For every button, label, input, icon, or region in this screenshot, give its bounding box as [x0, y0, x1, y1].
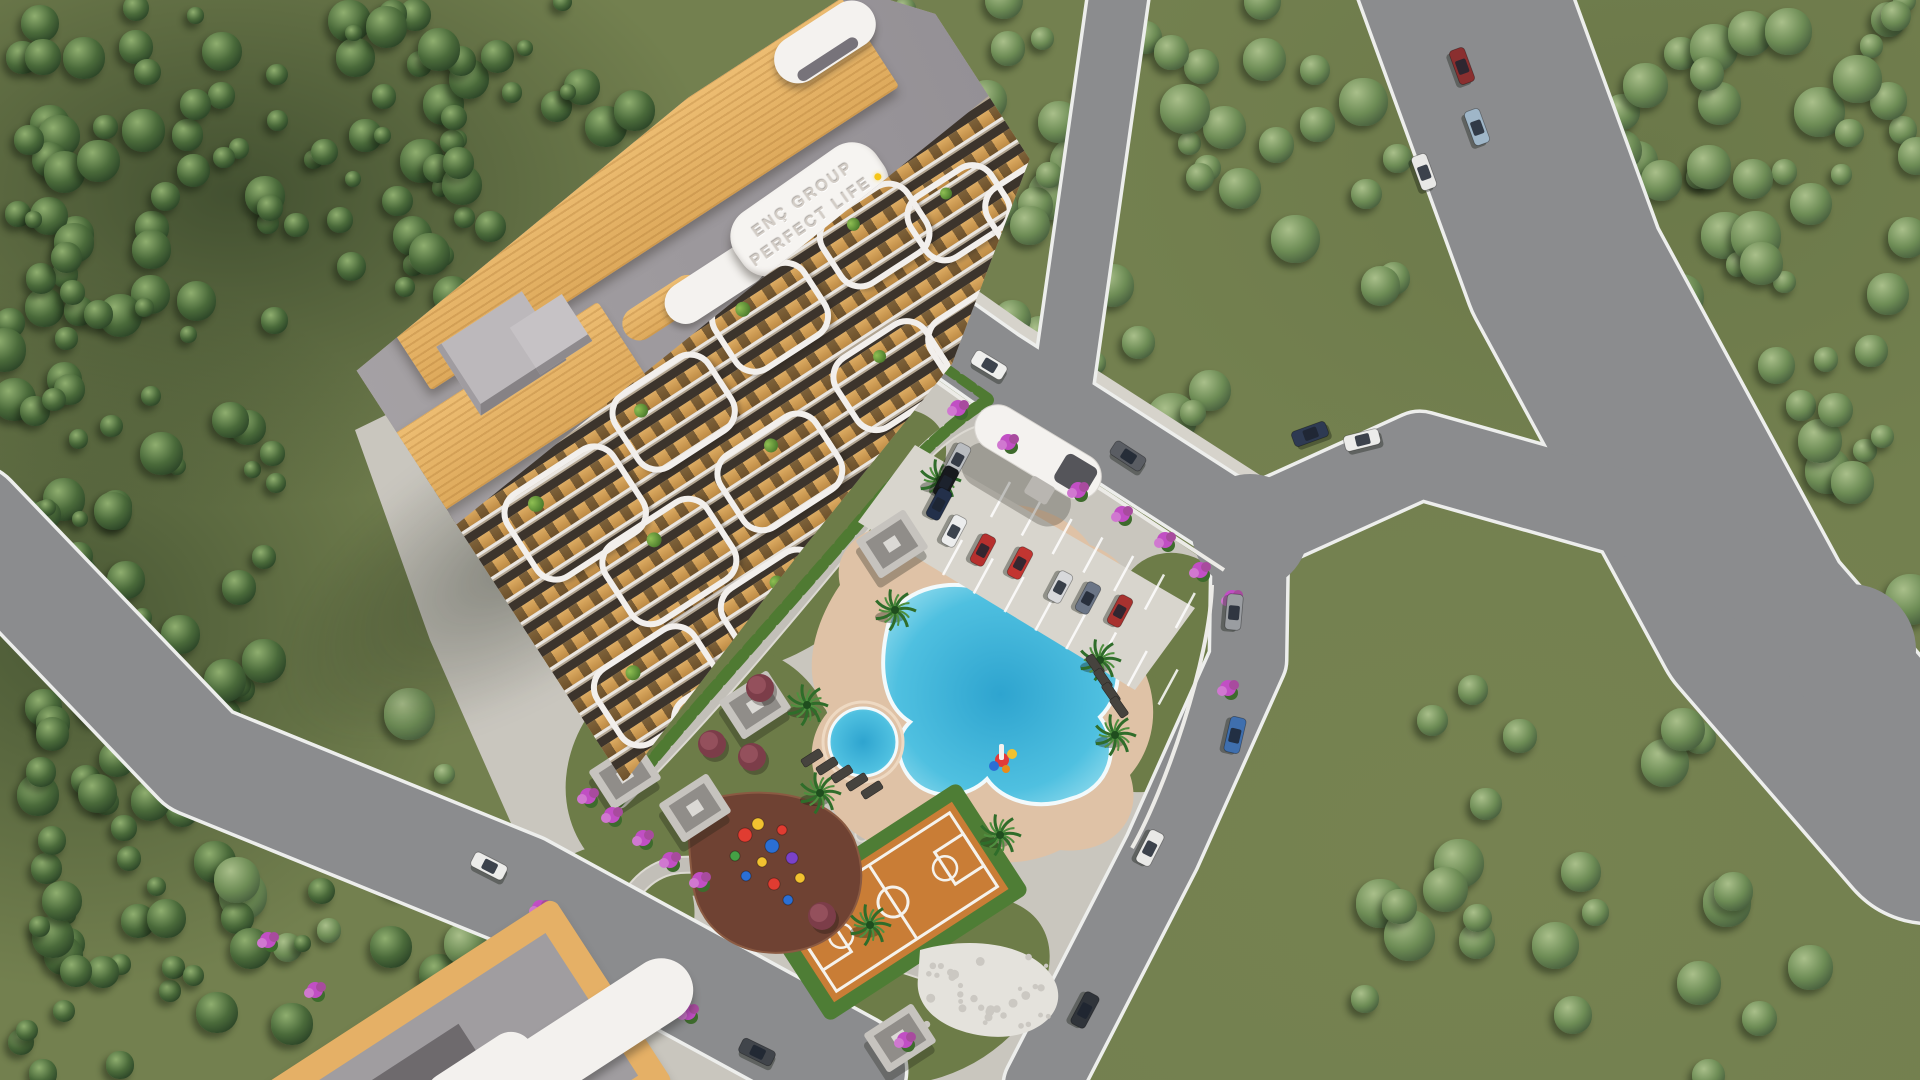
- sign-logo-dot: [873, 172, 883, 182]
- playground-equipment: [768, 878, 780, 890]
- car: [1290, 420, 1333, 452]
- playground-equipment: [765, 839, 779, 853]
- playground-equipment: [795, 873, 805, 883]
- playground-equipment: [783, 895, 793, 905]
- playground-equipment: [757, 857, 767, 867]
- bougainvillea-bush: [304, 982, 326, 1002]
- playground-equipment: [786, 852, 798, 864]
- aerial-site-render: ENÇ GROUP PERFECT LIFE: [0, 0, 1920, 1080]
- playground-equipment: [777, 825, 787, 835]
- playground-equipment: [752, 818, 764, 830]
- bougainvillea-bush: [257, 932, 279, 952]
- playground-equipment: [741, 871, 751, 881]
- playground-equipment: [738, 828, 752, 842]
- car: [1220, 593, 1243, 633]
- playground-equipment: [730, 851, 740, 861]
- kids-pool: [829, 708, 897, 776]
